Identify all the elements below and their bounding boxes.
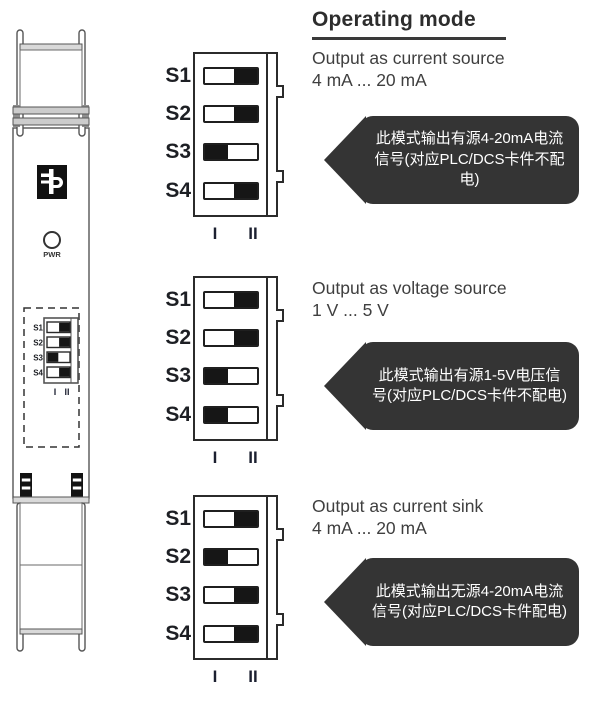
dip-block-current-source: S1 S2 S3 S4 I II	[147, 52, 297, 252]
switch-knob	[205, 550, 228, 564]
dip-switch-s3	[203, 367, 259, 385]
column-label-i: I	[208, 224, 222, 244]
switch-knob	[234, 512, 257, 526]
mini-col-ii: II	[64, 387, 69, 397]
dip-switch-label: S3	[147, 583, 191, 607]
dip-switch-s2	[203, 548, 259, 566]
device-top-clamp	[13, 30, 89, 136]
housing-notch	[276, 528, 284, 541]
mini-dip-s2	[47, 337, 70, 348]
switch-knob	[234, 627, 257, 641]
mode-title-current-sink: Output as current sink 4 mA ... 20 mA	[312, 495, 572, 539]
manual-page: PWR S1 S2 S3	[0, 0, 615, 707]
dip-switch-s1	[203, 291, 259, 309]
switch-knob	[234, 588, 257, 602]
dip-switch-label: S4	[147, 403, 191, 427]
dip-switch-label: S1	[147, 507, 191, 531]
dip-switch-s4	[203, 625, 259, 643]
mini-col-i: I	[54, 387, 57, 397]
dip-block-voltage-source: S1 S2 S3 S4 I II	[147, 276, 297, 476]
switch-knob	[205, 408, 228, 422]
housing-notch	[276, 85, 284, 98]
mini-label-s3: S3	[33, 354, 43, 363]
dip-switch-label: S2	[147, 102, 191, 126]
switch-knob	[234, 107, 257, 121]
dip-switch-s3	[203, 586, 259, 604]
dip-housing-strip	[266, 495, 278, 660]
dip-switch-label: S3	[147, 140, 191, 164]
column-label-ii: II	[244, 667, 262, 687]
callout-text: 此模式输出有源4-20mA电流信号(对应PLC/DCS卡件不配电)	[372, 129, 567, 191]
page-title: Operating mode	[312, 8, 506, 40]
dip-block-current-sink: S1 S2 S3 S4 I II	[147, 495, 297, 695]
dip-switch-s1	[203, 510, 259, 528]
annotation-callout-current-sink: 此模式输出无源4-20mA电流信号(对应PLC/DCS卡件配电)	[360, 558, 579, 646]
pwr-label: PWR	[43, 250, 61, 259]
dip-switch-label: S1	[147, 288, 191, 312]
column-label-ii: II	[244, 224, 262, 244]
switch-knob	[234, 69, 257, 83]
dip-switch-label: S3	[147, 364, 191, 388]
column-label-i: I	[208, 448, 222, 468]
mini-label-s2: S2	[33, 339, 43, 348]
mini-label-s1: S1	[33, 324, 43, 333]
dip-switch-label: S2	[147, 326, 191, 350]
annotation-callout-current-source: 此模式输出有源4-20mA电流信号(对应PLC/DCS卡件不配电)	[360, 116, 579, 204]
dip-housing-strip	[266, 52, 278, 217]
housing-notch	[276, 309, 284, 322]
device-bottom-clamp	[13, 497, 89, 651]
dip-switch-label: S1	[147, 64, 191, 88]
mode-title-line1: Output as current source	[312, 47, 572, 69]
mode-title-line1: Output as voltage source	[312, 277, 572, 299]
mode-title-line2: 4 mA ... 20 mA	[312, 69, 572, 91]
column-label-i: I	[208, 667, 222, 687]
callout-text: 此模式输出无源4-20mA电流信号(对应PLC/DCS卡件配电)	[372, 582, 567, 623]
dip-switch-s2	[203, 105, 259, 123]
switch-knob	[205, 369, 228, 383]
mode-title-voltage-source: Output as voltage source 1 V ... 5 V	[312, 277, 572, 321]
callout-text: 此模式输出有源1-5V电压信号(对应PLC/DCS卡件不配电)	[372, 366, 567, 407]
dip-switch-label: S4	[147, 179, 191, 203]
dip-switch-s1	[203, 67, 259, 85]
annotation-callout-voltage-source: 此模式输出有源1-5V电压信号(对应PLC/DCS卡件不配电)	[360, 342, 579, 430]
mode-title-line2: 1 V ... 5 V	[312, 299, 572, 321]
switch-knob	[205, 145, 228, 159]
power-led: PWR	[43, 232, 61, 259]
dip-switch-s4	[203, 406, 259, 424]
mode-title-line1: Output as current sink	[312, 495, 572, 517]
mode-title-line2: 4 mA ... 20 mA	[312, 517, 572, 539]
mini-dip-s4	[47, 367, 70, 378]
housing-notch	[276, 170, 284, 183]
switch-knob	[234, 331, 257, 345]
mini-label-s4: S4	[33, 369, 43, 378]
switch-knob	[234, 293, 257, 307]
device-illustration: PWR S1 S2 S3	[0, 0, 100, 707]
housing-notch	[276, 394, 284, 407]
dip-switch-label: S4	[147, 622, 191, 646]
column-label-ii: II	[244, 448, 262, 468]
dip-switch-s4	[203, 182, 259, 200]
dip-housing-strip	[266, 276, 278, 441]
mini-dip-s3	[47, 352, 70, 363]
dip-switch-s3	[203, 143, 259, 161]
dip-switch-s2	[203, 329, 259, 347]
pepperl-fuchs-logo	[37, 165, 67, 199]
switch-knob	[234, 184, 257, 198]
housing-notch	[276, 613, 284, 626]
dip-switch-label: S2	[147, 545, 191, 569]
mini-dip-s1	[47, 322, 70, 333]
mode-title-current-source: Output as current source 4 mA ... 20 mA	[312, 47, 572, 91]
